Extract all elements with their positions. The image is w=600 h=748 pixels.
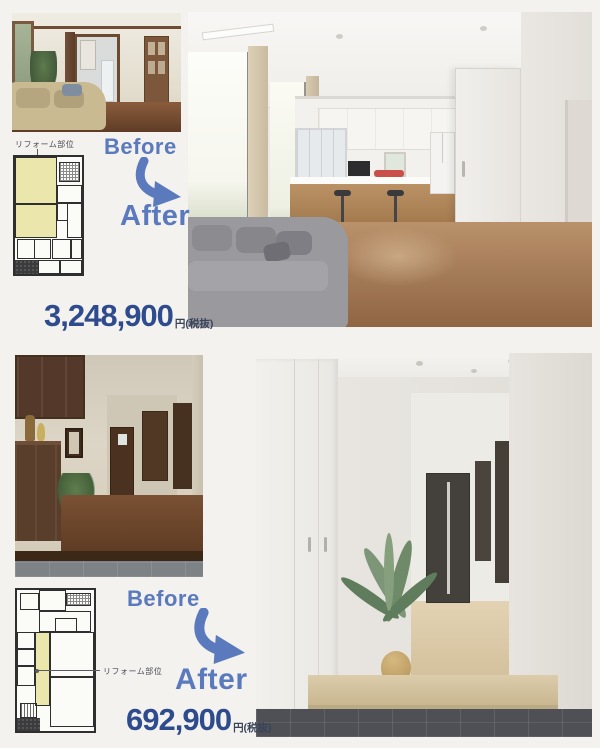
crown-molding (12, 26, 181, 29)
room (38, 260, 60, 274)
price-bottom: 692,900 円(税抜) (126, 704, 272, 735)
room-inner (55, 618, 77, 633)
entrance-block (17, 718, 40, 731)
door-panel-glass (148, 61, 155, 74)
door-handle (462, 161, 465, 177)
after-photo-ldk (188, 12, 592, 327)
closet-handle (324, 537, 327, 552)
room (17, 632, 35, 649)
before-photo-living-room (12, 13, 181, 132)
after-label-bottom: After (175, 663, 248, 697)
picture-frame (65, 428, 83, 458)
bar-stool-leg (394, 196, 397, 222)
door-panel-glass (158, 61, 165, 74)
after-label-top: After (120, 200, 190, 233)
door-panel-glass (148, 42, 155, 55)
right-door-2 (173, 403, 192, 489)
throw-pillow (62, 84, 82, 96)
floor-plan-top (13, 155, 84, 276)
downlight (416, 361, 423, 366)
downlight (336, 34, 343, 39)
price-unit-bottom: 円(税抜) (233, 723, 272, 734)
upper-cabinet (15, 355, 85, 419)
room (39, 611, 91, 632)
downlight (480, 26, 487, 31)
stairs-hatch (59, 162, 80, 182)
wood-platform-step (308, 675, 558, 709)
tile-genkan-floor (256, 709, 592, 737)
closet-handle (308, 537, 311, 552)
downlight (471, 369, 477, 373)
stairs-hatch (20, 703, 37, 719)
room (50, 677, 94, 726)
before-after-arrow-bottom (186, 608, 248, 664)
highlighted-room (15, 157, 57, 204)
inner-room-wall (80, 40, 96, 70)
sofa-back-cushion (192, 225, 232, 251)
palm-leaf (384, 533, 394, 611)
palm-plant (348, 533, 434, 673)
counter-items (374, 170, 404, 177)
back-door (110, 427, 134, 501)
sunlight-patch (338, 227, 458, 287)
door-glass-stripe (447, 482, 450, 594)
tile-floor (15, 561, 203, 577)
right-door (142, 411, 168, 481)
bath-hatch (66, 593, 91, 606)
step-edge (15, 551, 203, 561)
room (17, 649, 35, 666)
right-dark-door (475, 461, 491, 561)
room (71, 239, 82, 259)
renovated-area-label-top: リフォーム部位 (15, 139, 74, 150)
door-window (118, 434, 127, 445)
entrance-block (15, 260, 38, 274)
renovated-area-label-bottom: リフォーム部位 (103, 666, 162, 677)
room (57, 185, 82, 203)
door-panel-glass (158, 42, 165, 55)
wood-hall-floor (61, 495, 203, 557)
right-dark-door-2 (495, 441, 509, 583)
highlighted-room (15, 204, 57, 238)
price-amount-top: 3,248,900 (44, 300, 173, 331)
room-divider (34, 240, 35, 258)
vase (25, 415, 35, 441)
white-closet (256, 359, 338, 711)
four-panel-door (144, 36, 169, 106)
room (52, 239, 71, 259)
sofa-seat (188, 261, 328, 291)
refrigerator (430, 132, 455, 194)
brochure-page: リフォーム部位 Before After 3,248,900 円(税抜) (0, 0, 600, 748)
closet-door-seam (294, 359, 295, 711)
after-photo-genkan (256, 353, 592, 737)
beige-sofa (12, 82, 106, 130)
before-photo-hallway (15, 355, 203, 577)
bar-stool-leg (341, 196, 344, 222)
room (17, 666, 35, 686)
room (20, 593, 38, 610)
price-amount-bottom: 692,900 (126, 704, 231, 735)
room (17, 239, 51, 259)
leader-line-bottom (38, 670, 100, 671)
bottle (37, 423, 45, 441)
lower-cabinet (15, 441, 61, 541)
black-appliance (348, 161, 370, 176)
glass-cabinet (295, 128, 347, 180)
sofa-cushion (16, 88, 50, 108)
room (67, 203, 82, 238)
price-unit-top: 円(税抜) (175, 319, 214, 330)
room (39, 590, 67, 611)
frame-mat (69, 432, 79, 454)
closet-door-seam (318, 359, 319, 711)
price-top: 3,248,900 円(税抜) (44, 300, 213, 331)
fridge-door-seam (442, 133, 443, 163)
room (60, 260, 82, 274)
floor-plan-bottom (15, 588, 96, 733)
